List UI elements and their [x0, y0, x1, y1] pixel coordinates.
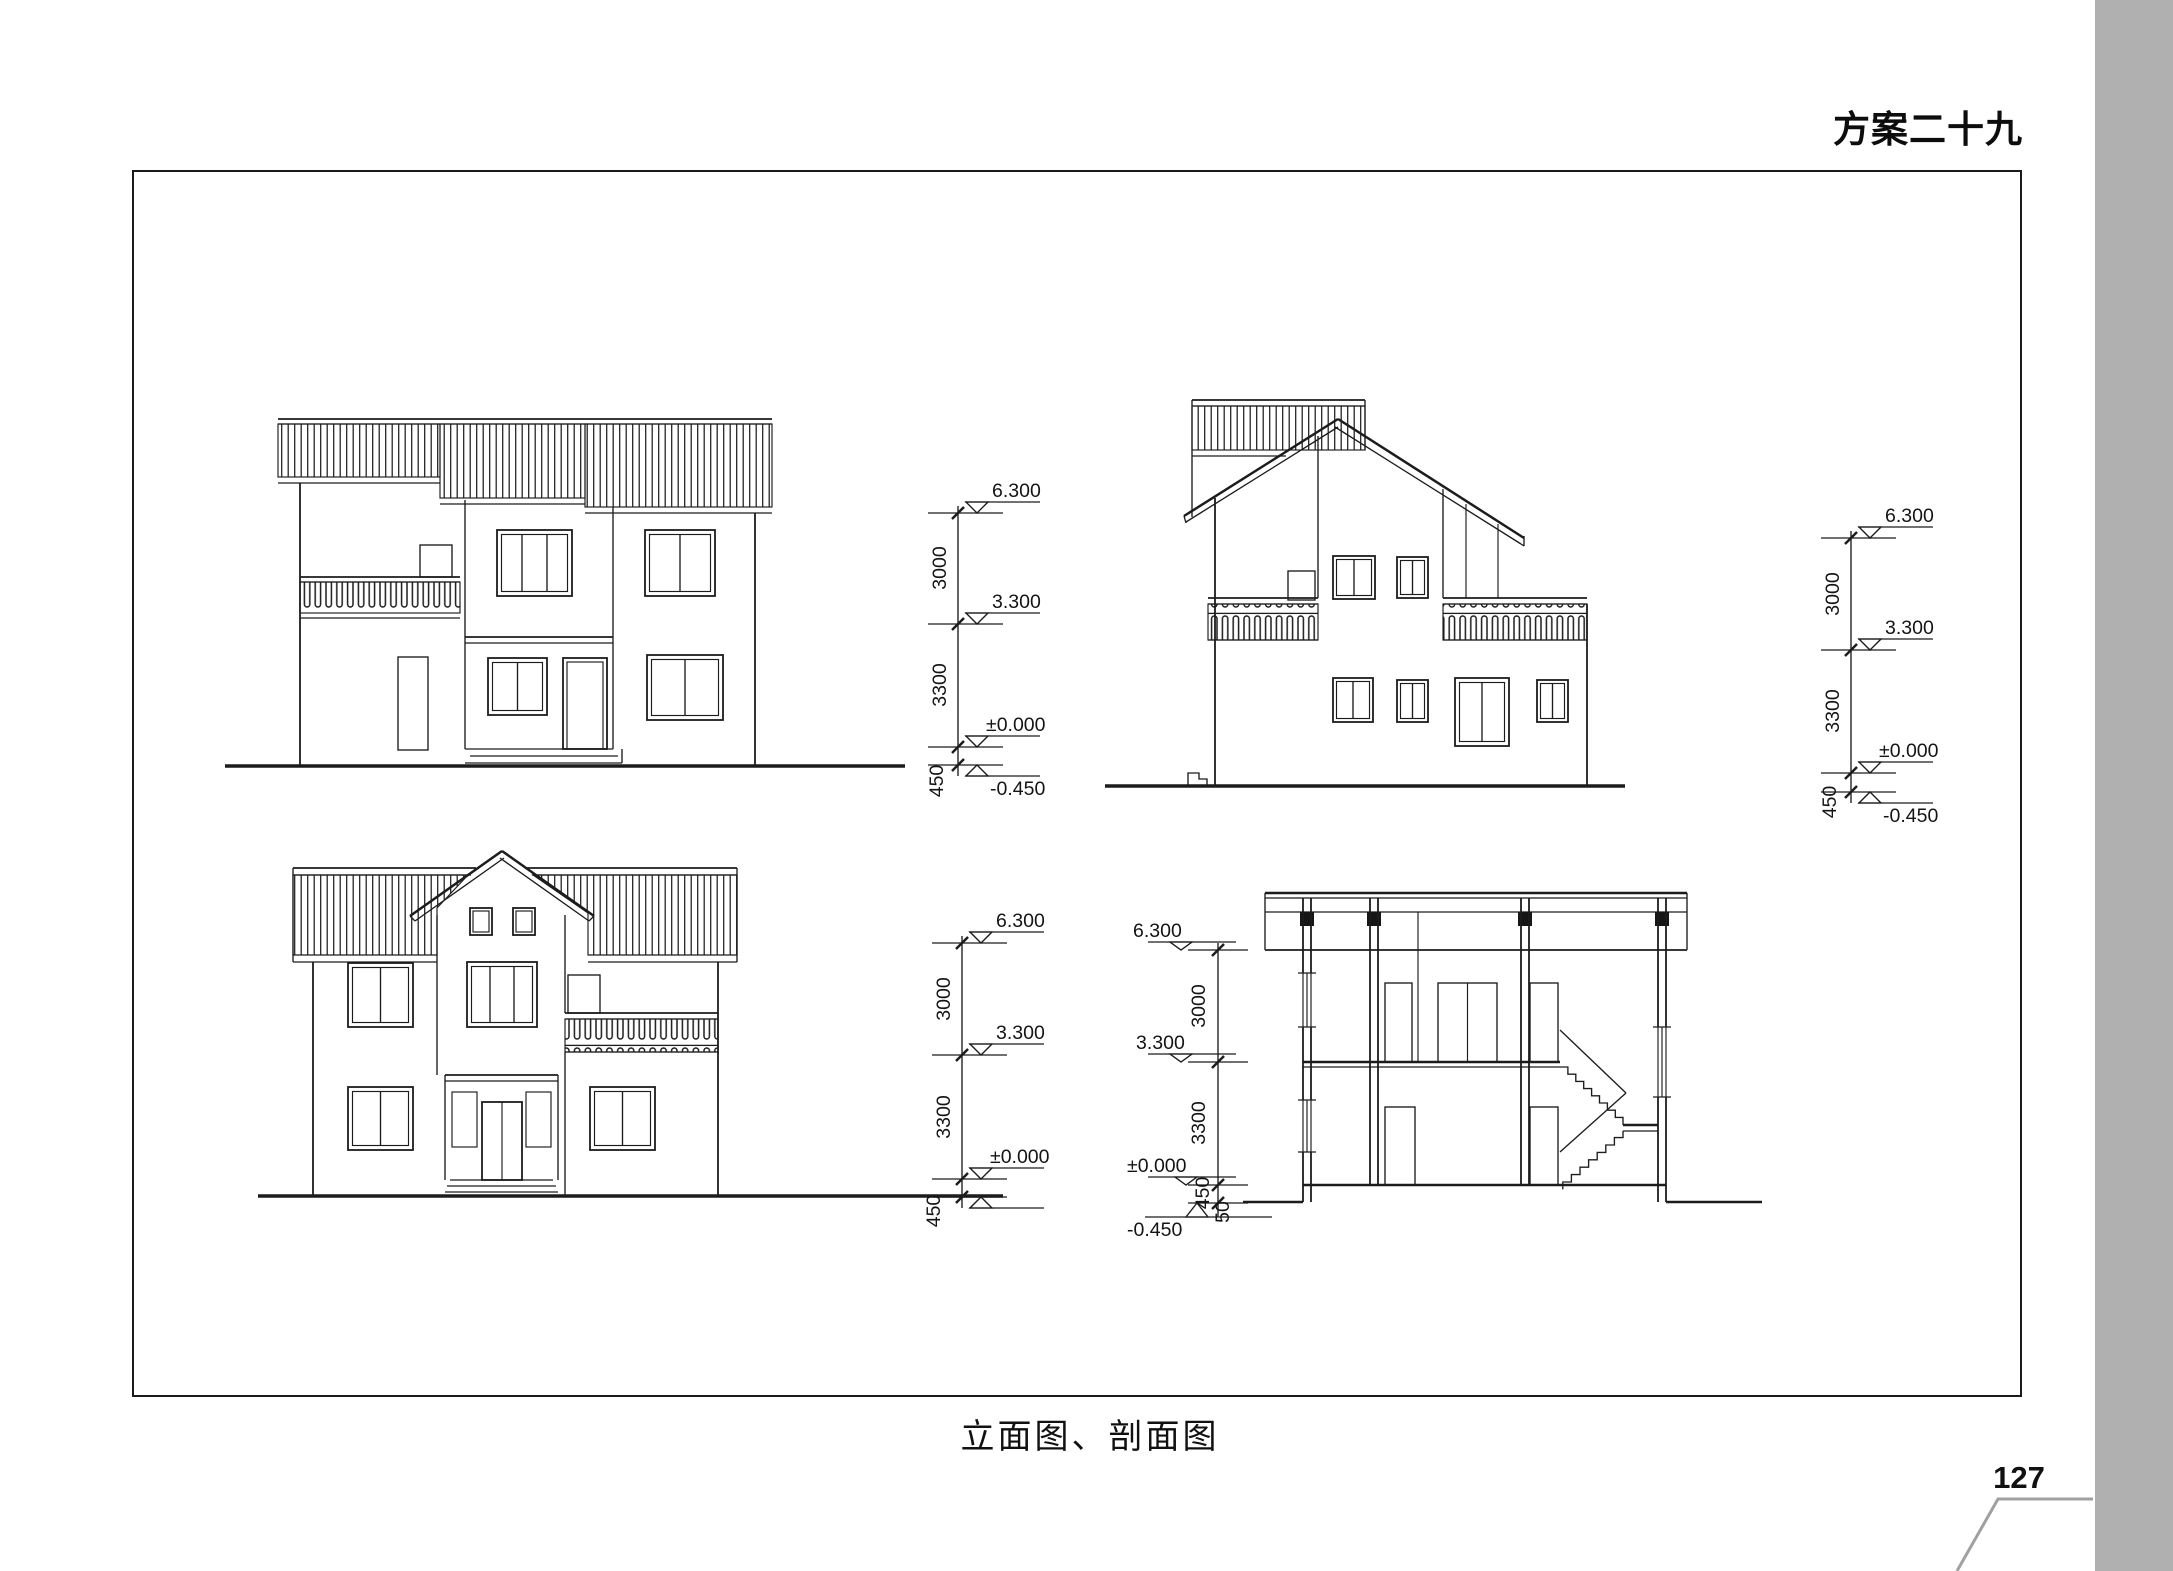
level-label: ±0.000: [1127, 1155, 1187, 1177]
level-label: 3.300: [992, 591, 1041, 613]
roof-band: [293, 868, 737, 962]
window: [590, 1087, 655, 1150]
dim-label: 3300: [929, 663, 951, 707]
dim-set-front-elevation: 6.300 3.300 ±0.000 -0.450 3000 3300 450: [926, 480, 1046, 800]
balcony-railing: [1443, 598, 1587, 640]
dim-label: 3300: [1188, 1101, 1210, 1145]
level-label: 6.300: [992, 480, 1041, 502]
plinth-step: [1188, 773, 1207, 786]
level-label: -0.450: [1127, 1219, 1182, 1241]
balcony-railing: [1208, 598, 1318, 640]
window: [1397, 557, 1428, 598]
dim-set-side-elevation: 6.300 3.300 ±0.000 -0.450 3000 3300 450: [1819, 505, 1939, 827]
chimney-block: [420, 545, 452, 577]
level-label: 3.300: [1136, 1032, 1185, 1054]
roof-band: [1192, 400, 1365, 517]
dim-label: 3000: [1822, 572, 1844, 616]
roof-slab: [1265, 893, 1687, 950]
dim-set-section: 6.300 3.300 ±0.000 -0.450 3000 3300 450 …: [1127, 920, 1272, 1241]
dim-label: 450: [923, 1195, 945, 1228]
level-label: 3.300: [996, 1022, 1045, 1044]
staircase: [1560, 1030, 1658, 1189]
double-door-opening: [1438, 983, 1497, 1062]
window: [348, 1087, 413, 1150]
entry-door: [563, 658, 607, 749]
dim-label: 50: [1212, 1201, 1234, 1223]
front-elevation-drawing: [225, 419, 905, 766]
level-label: ±0.000: [1879, 740, 1939, 762]
level-label: 6.300: [1133, 920, 1182, 942]
window: [348, 963, 413, 1027]
corner-decoration-line: [1957, 1499, 2093, 1571]
window: [647, 655, 723, 720]
dim-label: 450: [926, 765, 948, 798]
dim-label: 3300: [933, 1095, 955, 1139]
level-label: -0.450: [990, 778, 1045, 800]
figure-caption: 立面图、剖面图: [860, 1412, 1320, 1462]
window: [513, 908, 535, 935]
window: [645, 530, 715, 596]
section-drawing: [1243, 893, 1762, 1202]
dim-label: 450: [1819, 786, 1841, 819]
chimney-block: [1288, 571, 1315, 600]
window: [1397, 680, 1428, 722]
dim-label: 3000: [1188, 984, 1210, 1028]
window: [1333, 556, 1375, 599]
window: [488, 658, 547, 715]
level-label: ±0.000: [986, 714, 1046, 736]
dim-label: 3000: [929, 546, 951, 590]
window: [398, 657, 428, 750]
wall-columns: [1303, 898, 1666, 1202]
level-label: 6.300: [996, 910, 1045, 932]
window: [467, 962, 537, 1027]
balcony-railing: [300, 577, 460, 618]
rear-elevation-drawing: [258, 851, 1003, 1196]
book-page: 方案二十九: [0, 0, 2173, 1571]
door-opening: [1385, 1107, 1415, 1185]
window: [470, 908, 492, 935]
level-label: ±0.000: [990, 1146, 1050, 1168]
level-label: 3.300: [1885, 617, 1934, 639]
page-number: 127: [1960, 1460, 2078, 1496]
entrance-porch: [445, 1075, 558, 1192]
window: [497, 530, 572, 596]
window: [1455, 678, 1509, 746]
dim-label: 3300: [1822, 689, 1844, 733]
drawings-canvas: 6.300 3.300 ±0.000 -0.450 3000 3300 450: [0, 0, 2173, 1571]
chimney-block: [568, 975, 600, 1013]
balcony-railing: [565, 1013, 718, 1052]
side-elevation-drawing: [1105, 400, 1625, 786]
dim-label: 450: [1192, 1177, 1214, 1210]
window: [1537, 680, 1568, 722]
level-label: 6.300: [1885, 505, 1934, 527]
dim-set-rear-elevation: 6.300 3.300 ±0.000 3000 3300 450: [923, 910, 1050, 1227]
door-opening: [1530, 983, 1558, 1062]
roof-band: [278, 419, 772, 513]
window: [1333, 678, 1373, 722]
door-opening: [1530, 1107, 1558, 1185]
entrance-porch: [465, 637, 622, 763]
level-label: -0.450: [1883, 805, 1938, 827]
door-opening: [1385, 983, 1412, 1062]
dim-label: 3000: [933, 977, 955, 1021]
